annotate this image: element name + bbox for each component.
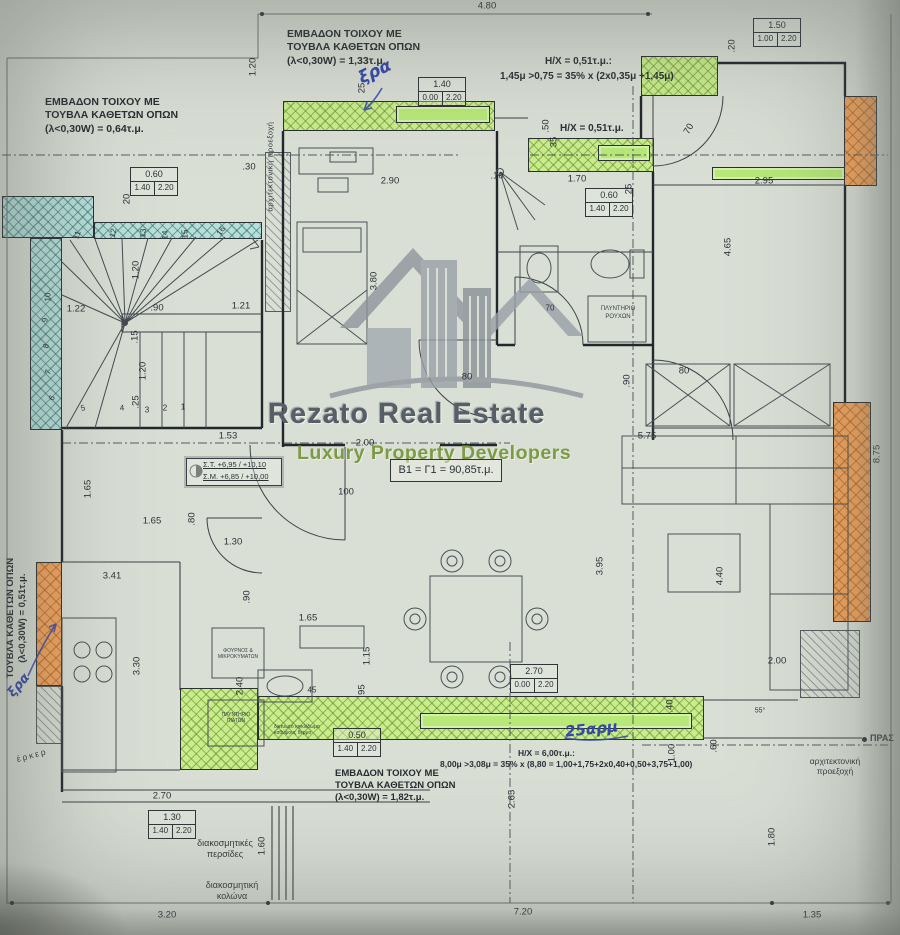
- dimension-label: .20: [727, 39, 738, 52]
- dimension-label: 12: [108, 228, 119, 239]
- dimension-label: 1.21: [232, 301, 251, 312]
- dimension-label: 3: [145, 406, 149, 415]
- dimension-label: 1.60: [257, 837, 268, 856]
- dimension-label: 8.75: [872, 445, 883, 464]
- dimension-label: 1.53: [219, 431, 238, 442]
- floorplan-canvas: Rezato Real Estate Luxury Property Devel…: [0, 0, 900, 935]
- dimension-label: 35: [549, 137, 560, 148]
- dimension-label: .80: [187, 512, 198, 525]
- dimension-label: .95: [357, 684, 368, 697]
- dimension-label: 6: [47, 394, 57, 402]
- dimension-label: 1.70: [568, 174, 587, 185]
- dimension-label: 20: [122, 194, 133, 205]
- dimension-label: 4.80: [478, 1, 497, 12]
- dimension-label: 2.90: [381, 176, 400, 187]
- dimension-label: 5.75: [638, 431, 657, 442]
- dimension-label: 2.70: [153, 791, 172, 802]
- dimension-label: 15: [181, 230, 190, 239]
- dimension-label: 1.35: [803, 910, 822, 921]
- dimension-label: 2.40: [235, 677, 246, 696]
- dimension-label: .30: [242, 162, 255, 173]
- dimension-label: 3.41: [103, 571, 122, 582]
- dimension-label: 7: [43, 368, 53, 375]
- dimension-label: 80: [679, 366, 690, 377]
- dimension-label: 3.95: [595, 557, 606, 576]
- dimension-label: .15: [130, 330, 141, 343]
- dimension-label: 70: [682, 122, 697, 137]
- dimension-label: 1.00: [667, 744, 678, 763]
- dimension-label: 1.22: [67, 304, 86, 315]
- dimension-layer: 4.80.202.90.101.70252.952025.5035704.653…: [0, 0, 900, 935]
- dimension-label: .25: [131, 395, 142, 408]
- dimension-label: 25: [624, 184, 635, 195]
- dimension-label: 3.30: [132, 657, 143, 676]
- dimension-label: 2.00: [356, 438, 375, 449]
- dimension-label: 16: [215, 225, 227, 237]
- dimension-label: 13: [138, 228, 148, 238]
- dimension-label: 11: [71, 230, 82, 241]
- dimension-label: 3.80: [369, 272, 380, 291]
- dimension-label: 4.65: [723, 238, 734, 257]
- dimension-label: 3.20: [158, 910, 177, 921]
- dimension-label: 55°: [755, 708, 766, 715]
- dimension-label: .90: [150, 303, 163, 314]
- dimension-label: .90: [622, 374, 633, 387]
- dimension-label: 1: [181, 403, 185, 412]
- dimension-label: .40: [665, 699, 676, 712]
- dimension-label: 1.65: [83, 480, 94, 499]
- dimension-label: 10: [44, 293, 53, 302]
- dimension-label: .10: [490, 171, 503, 182]
- dimension-label: 14: [160, 230, 169, 239]
- dimension-label: 8: [41, 343, 51, 349]
- dimension-label: 1.65: [143, 516, 162, 527]
- dimension-label: .60: [709, 739, 720, 752]
- dimension-label: 45: [308, 686, 317, 695]
- dimension-label: 100: [338, 487, 354, 498]
- dimension-label: 9: [40, 317, 49, 322]
- dimension-label: 25: [357, 83, 368, 94]
- dimension-label: 5: [80, 403, 87, 413]
- dimension-label: .90: [242, 590, 253, 603]
- dimension-label: 1.20: [248, 58, 259, 77]
- dimension-label: 1.30: [224, 537, 243, 548]
- dimension-label: 4.40: [715, 567, 726, 586]
- dimension-label: 2.65: [507, 790, 518, 809]
- dimension-label: 2.95: [755, 176, 774, 187]
- dimension-label: 7.20: [514, 907, 533, 918]
- dimension-label: 2.00: [768, 656, 787, 667]
- dimension-label: 1.20: [138, 362, 149, 381]
- dimension-label: 1.20: [131, 261, 142, 280]
- dimension-label: .50: [541, 119, 552, 132]
- dimension-label: 80: [462, 372, 473, 383]
- dimension-label: 4: [119, 403, 124, 412]
- dimension-label: 70: [546, 304, 555, 313]
- dimension-label: 1.80: [767, 828, 778, 847]
- dimension-label: 1.65: [299, 613, 318, 624]
- dimension-label: 2: [163, 404, 167, 413]
- dimension-label: 1.15: [362, 647, 373, 666]
